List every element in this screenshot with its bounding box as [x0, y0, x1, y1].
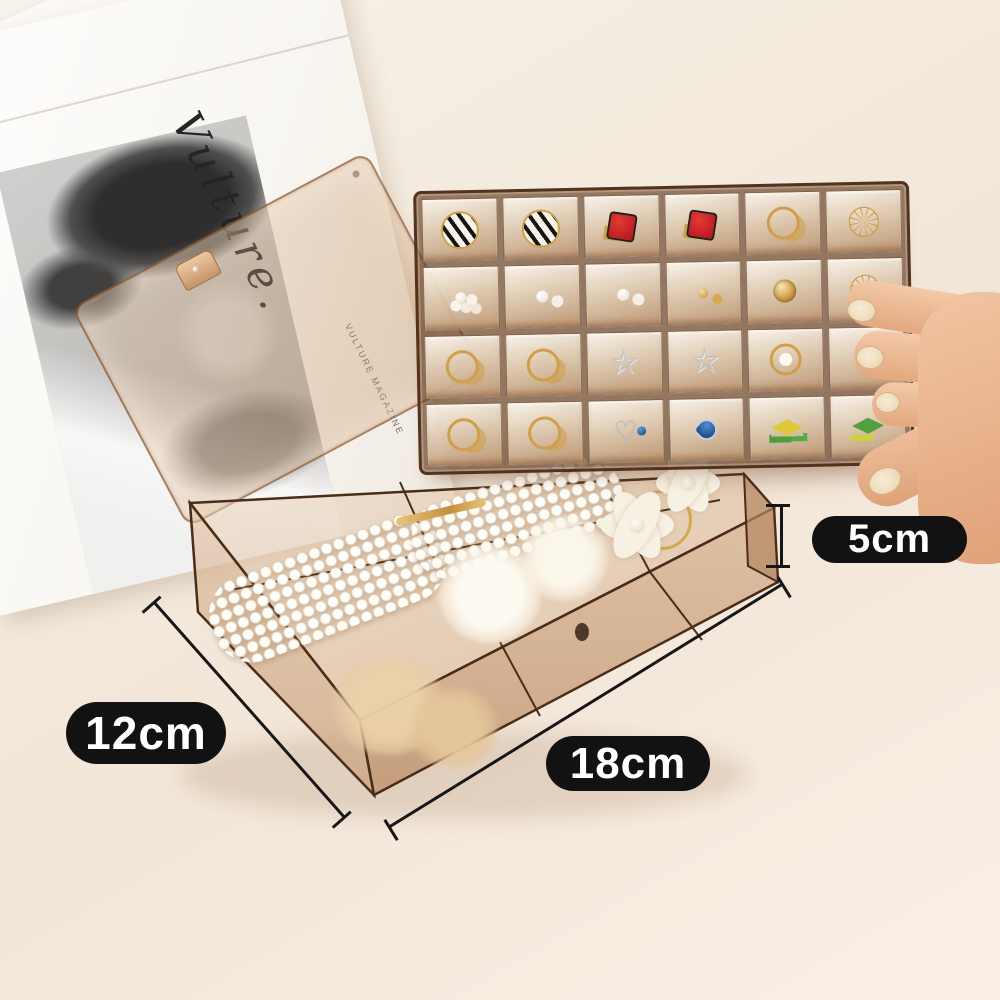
dimension-label-12cm: 12cm: [66, 702, 226, 764]
tray-cell: [502, 196, 579, 261]
tray-item-yellow-bow: [771, 418, 803, 437]
tray-cell: [421, 197, 498, 262]
tray-item-wire-ball: [849, 206, 880, 237]
tray-cell: [747, 327, 824, 392]
tray-item-gold-hoop: [447, 418, 481, 452]
dimension-label-18cm: 18cm: [546, 736, 710, 791]
tray-cell: [584, 262, 661, 327]
tray-item-blue-gem: [692, 415, 722, 445]
tray-item-striped-circle: [521, 209, 560, 248]
tray-cell: ☆: [667, 329, 744, 394]
tray-cell: [668, 397, 745, 462]
tray-cell: [825, 189, 902, 254]
tray-cell: [746, 259, 823, 324]
tray-item-pearl-cluster: [456, 293, 467, 304]
tray-cell: [426, 402, 503, 467]
tray-grid: ☆☆♡: [421, 189, 907, 467]
tray-cell: [749, 395, 826, 460]
flower-hair-tie: [600, 508, 674, 542]
dimension-line-5cm: [780, 505, 783, 567]
tray-item-gold-hoop: [446, 350, 480, 384]
tray-cell: [424, 334, 501, 399]
tray-item-red-square: [605, 211, 637, 243]
beige-scrunchie: [408, 688, 500, 768]
box-front-knob: [575, 623, 589, 641]
tray-item-gold-stud: [699, 288, 709, 298]
tray-item-silver-star: ☆: [690, 344, 721, 379]
tray-item-gold-ball: [773, 280, 796, 303]
tray-cell: [583, 194, 660, 259]
tray-cell: [745, 191, 822, 256]
tray-cell: ♡: [587, 399, 664, 464]
tray-item-gold-flower: [770, 343, 803, 376]
fur-pom-pom: [520, 515, 608, 601]
tray-item-gold-hoop: [766, 206, 800, 240]
tray-cell: [506, 400, 583, 465]
product-photo-jewelry-organizer: { "annotations": { "height_label": "5cm"…: [0, 0, 1000, 1000]
tray-cell: ☆: [586, 331, 663, 396]
tray-item-gold-hoop: [528, 416, 562, 450]
tray-item-gold-hoop: [527, 348, 561, 382]
dimension-label-5cm: 5cm: [812, 516, 967, 563]
tray-item-pearl-stud: [617, 289, 629, 301]
tray-cell: [503, 264, 580, 329]
tray-cell: [665, 261, 742, 326]
tray-item-striped-circle: [440, 210, 479, 249]
earring-tray: ☆☆♡: [413, 181, 915, 475]
flower-hair-tie: [656, 468, 720, 498]
tray-cell: [664, 192, 741, 257]
tray-item-red-square: [686, 209, 718, 241]
tray-item-pearl-stud: [536, 290, 548, 302]
tray-cell: [505, 332, 582, 397]
tray-cell: [423, 266, 500, 331]
tray-item-silver-heart: ♡: [614, 418, 638, 444]
tray-item-silver-star: ☆: [609, 346, 640, 381]
